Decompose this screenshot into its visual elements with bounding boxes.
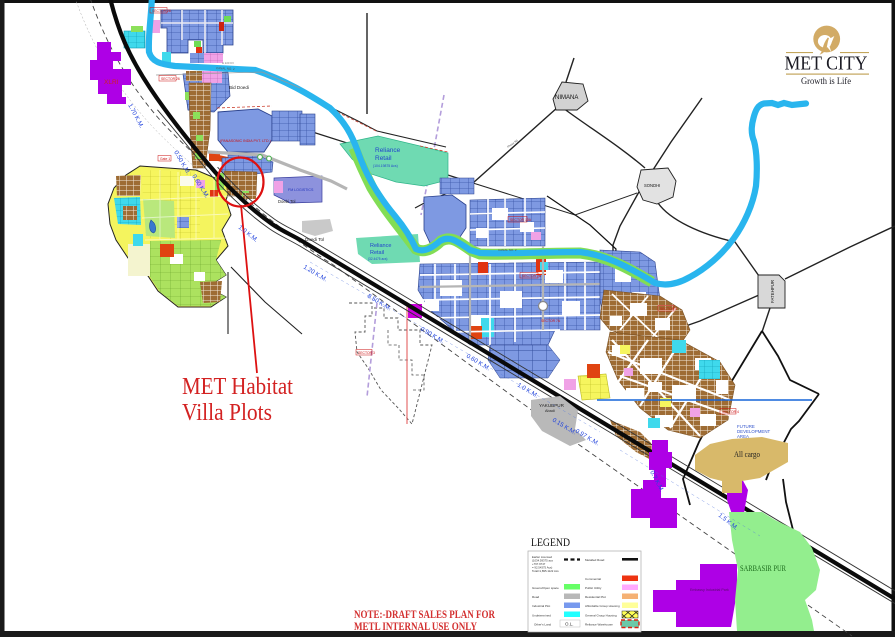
svg-text:Abadi: Abadi	[545, 409, 555, 413]
svg-text:All cargo: All cargo	[734, 450, 760, 459]
svg-text:Industrial Plot: Industrial Plot	[532, 604, 550, 608]
svg-text:H 220 KV: H 220 KV	[222, 61, 234, 65]
svg-text:SARBASIR PUR: SARBASIR PUR	[740, 564, 787, 573]
svg-text:Total=1,895.1122 Acs: Total=1,895.1122 Acs	[532, 569, 559, 573]
svg-text:Growth is Life: Growth is Life	[801, 76, 851, 87]
svg-text:Doebi Tol: Doebi Tol	[278, 199, 295, 204]
svg-text:Greens/Open space: Greens/Open space	[532, 586, 559, 590]
svg-text:Road: Road	[532, 595, 540, 599]
svg-text:Embassy Industrial Park: Embassy Industrial Park	[690, 588, 729, 592]
svg-text:(PANASONIC INDIA PVT. LTD.): (PANASONIC INDIA PVT. LTD.)	[220, 139, 271, 143]
svg-text:Reliance: Reliance	[375, 147, 401, 154]
svg-text:Commercial: Commercial	[585, 577, 601, 581]
svg-text:SECTOR 8: SECTOR 8	[660, 307, 677, 311]
svg-text:(104.19875 Acs): (104.19875 Acs)	[373, 164, 398, 168]
svg-text:SECTOR 7A: SECTOR 7A	[541, 319, 561, 323]
svg-text:Villa Plots: Villa Plots	[182, 400, 272, 426]
svg-text:SECTOR 26: SECTOR 26	[161, 77, 180, 81]
svg-text:XLRI: XLRI	[104, 79, 119, 86]
svg-text:General Group Housing: General Group Housing	[585, 614, 617, 618]
svg-text:Undetermined: Undetermined	[532, 614, 551, 618]
svg-text:METL INTERNAL USE ONLY: METL INTERNAL USE ONLY	[354, 619, 477, 633]
svg-text:SECTOR 28: SECTOR 28	[152, 9, 171, 13]
svg-text:FATEHPUR: FATEHPUR	[770, 280, 775, 303]
svg-text:Residential Plot: Residential Plot	[585, 595, 606, 599]
svg-text:CANAL NO. 2: CANAL NO. 2	[498, 248, 517, 252]
svg-text:Doedi Tol: Doedi Tol	[305, 237, 324, 242]
svg-text:SECTOR 4: SECTOR 4	[722, 410, 739, 414]
svg-text:MET Habitat: MET Habitat	[182, 374, 293, 400]
svg-text:O.L.: O.L.	[565, 622, 574, 627]
svg-text:YAKUBPUR: YAKUBPUR	[539, 403, 565, 408]
svg-text:Retail: Retail	[375, 155, 392, 162]
svg-text:AREA: AREA	[737, 434, 749, 439]
svg-text:Other's Land: Other's Land	[534, 623, 551, 627]
svg-text:SECTOR 3: SECTOR 3	[358, 351, 375, 355]
svg-text:Gate 1: Gate 1	[160, 157, 170, 161]
svg-text:FM LOGISTICS: FM LOGISTICS	[288, 188, 314, 192]
svg-text:Affordable Group Housing: Affordable Group Housing	[585, 604, 620, 608]
svg-text:Bid Doedi: Bid Doedi	[229, 85, 249, 90]
svg-text:SONDHI: SONDHI	[644, 183, 660, 188]
svg-text:Public Utility: Public Utility	[585, 586, 602, 590]
svg-text:Metalled Road: Metalled Road	[585, 558, 605, 562]
svg-text:Reliance Warehouse: Reliance Warehouse	[585, 623, 613, 627]
svg-text:NIMANA: NIMANA	[555, 95, 578, 101]
svg-text:MET CITY: MET CITY	[785, 54, 868, 75]
svg-text:(32.4475 acs): (32.4475 acs)	[368, 257, 388, 261]
svg-text:Reliance: Reliance	[370, 243, 391, 249]
svg-text:SECTOR 7B: SECTOR 7B	[522, 274, 542, 278]
svg-text:SECTOR 10A: SECTOR 10A	[510, 218, 532, 222]
svg-text:LEGEND: LEGEND	[531, 537, 570, 549]
svg-text:Retail: Retail	[370, 250, 384, 256]
